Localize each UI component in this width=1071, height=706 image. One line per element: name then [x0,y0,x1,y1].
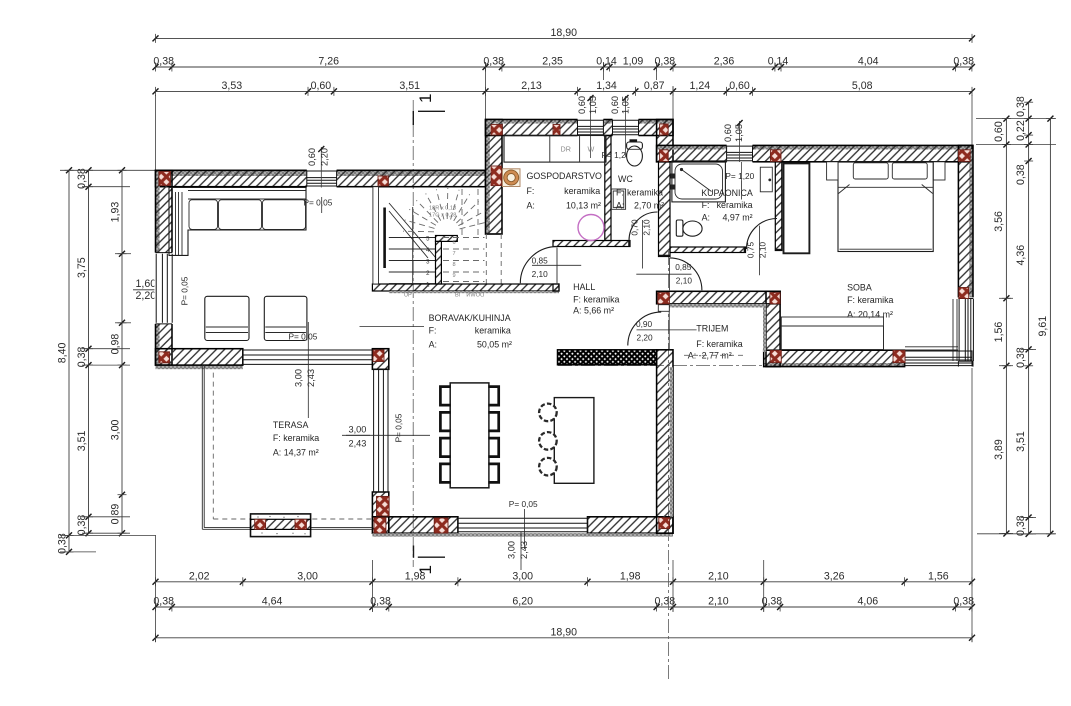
svg-text:3,56: 3,56 [993,211,1005,232]
svg-text:5,08: 5,08 [852,80,873,92]
svg-text:0,38: 0,38 [1015,347,1027,368]
svg-text:2,10: 2,10 [676,276,693,286]
svg-text:0,90: 0,90 [636,319,653,329]
svg-text:3,51: 3,51 [1015,431,1027,452]
svg-text:KUPAONICA: KUPAONICA [701,188,753,198]
svg-text:2,10: 2,10 [642,219,652,236]
svg-text:Bl: Bl [455,293,460,299]
svg-text:DR: DR [561,145,571,154]
svg-text:TERASA: TERASA [273,420,309,430]
svg-text:WC: WC [618,174,633,184]
svg-text:0,38: 0,38 [153,596,174,608]
svg-text:UP: UP [404,293,412,299]
svg-text:1,98: 1,98 [620,570,641,582]
svg-text:2,20: 2,20 [637,333,654,343]
svg-text:3,89: 3,89 [993,439,1005,460]
svg-text:P= 0,05: P= 0,05 [304,198,333,208]
svg-text:0,38: 0,38 [57,533,69,554]
svg-text:2,43: 2,43 [349,438,367,448]
svg-text:F:: F: [429,326,437,336]
svg-text:50,05 m²: 50,05 m² [477,340,512,350]
svg-text:W: W [588,145,595,154]
svg-text:17G x 0,28: 17G x 0,28 [429,213,456,219]
svg-text:1: 1 [416,565,435,574]
svg-text:3,53: 3,53 [221,80,242,92]
svg-text:4,06: 4,06 [857,596,878,608]
svg-text:4,04: 4,04 [858,56,879,68]
svg-text:3,00: 3,00 [506,541,516,559]
svg-text:0,14: 0,14 [768,56,789,68]
svg-text:1,24: 1,24 [689,80,710,92]
svg-text:0,85: 0,85 [532,256,549,266]
svg-text:0,38: 0,38 [483,56,504,68]
svg-text:0,60: 0,60 [723,124,733,142]
svg-text:4,97 m²: 4,97 m² [723,213,753,223]
svg-text:F:: F: [616,188,624,198]
svg-text:F: keramika: F: keramika [847,295,893,305]
svg-text:0,38: 0,38 [153,56,174,68]
svg-text:2,10: 2,10 [708,596,729,608]
svg-text:1,09: 1,09 [623,56,644,68]
svg-text:2,20: 2,20 [320,148,330,166]
svg-text:2,43: 2,43 [306,369,316,387]
svg-text:10,13 m²: 10,13 m² [566,201,601,211]
svg-text:0,38: 0,38 [1015,515,1027,536]
svg-text:3,00: 3,00 [349,424,367,434]
svg-text:P= 0,05: P= 0,05 [180,276,190,305]
svg-text:3,00: 3,00 [110,419,122,440]
svg-text:0,14: 0,14 [596,56,617,68]
svg-text:9: 9 [453,273,456,279]
svg-text:2,10: 2,10 [532,269,549,279]
svg-text:2,10: 2,10 [708,570,729,582]
svg-text:18,90: 18,90 [551,27,578,39]
svg-text:F: keramika: F: keramika [696,339,742,349]
svg-text:9,61: 9,61 [1037,316,1049,337]
svg-text:2,20: 2,20 [136,290,157,302]
svg-text:0,38: 0,38 [1015,164,1027,185]
svg-text:0,75: 0,75 [746,242,756,259]
svg-text:1,60: 1,60 [136,278,157,290]
svg-text:0,38: 0,38 [654,56,675,68]
svg-text:keramika: keramika [475,326,511,336]
svg-text:P= 0,05: P= 0,05 [289,332,318,342]
svg-text:2,35: 2,35 [542,56,563,68]
svg-text:0,60: 0,60 [311,80,332,92]
svg-text:3,00: 3,00 [297,570,318,582]
svg-text:7: 7 [453,251,456,257]
svg-text:SOBA: SOBA [847,283,872,293]
svg-text:GOSPODARSTVO: GOSPODARSTVO [527,171,603,181]
svg-text:2,10: 2,10 [758,242,768,259]
svg-text:A:: A: [429,340,437,350]
svg-text:6: 6 [453,240,456,246]
svg-text:A: 5,66 m²: A: 5,66 m² [573,306,614,316]
svg-text:1,34: 1,34 [596,80,617,92]
svg-text:18R x 0,18: 18R x 0,18 [429,206,456,212]
svg-text:F: keramika: F: keramika [573,295,619,305]
svg-text:1: 1 [416,94,435,103]
svg-text:A:: A: [616,201,624,211]
svg-text:A: 20,14 m²: A: 20,14 m² [847,309,893,319]
svg-text:0,60: 0,60 [307,148,317,166]
svg-text:0,98: 0,98 [110,334,122,355]
svg-text:8: 8 [453,262,456,268]
svg-text:0,38: 0,38 [76,515,88,536]
svg-text:0,38: 0,38 [370,596,391,608]
svg-text:1,05: 1,05 [734,124,744,142]
svg-text:7,26: 7,26 [318,56,339,68]
svg-text:6,20: 6,20 [512,596,533,608]
svg-text:2,02: 2,02 [189,570,210,582]
svg-text:TRIJEM: TRIJEM [696,324,728,334]
svg-text:0,70: 0,70 [630,219,640,236]
svg-text:18,90: 18,90 [551,626,578,638]
svg-text:1,56: 1,56 [928,570,949,582]
svg-text:keramika: keramika [564,186,600,196]
svg-text:0,38: 0,38 [1015,96,1027,117]
svg-text:0,22: 0,22 [1015,120,1027,141]
svg-text:3,00: 3,00 [294,369,304,387]
svg-text:F:: F: [702,200,710,210]
svg-text:0,38: 0,38 [953,596,974,608]
svg-text:1,93: 1,93 [110,202,122,223]
svg-text:4,64: 4,64 [262,596,283,608]
svg-text:0,89: 0,89 [110,504,122,525]
svg-text:0,87: 0,87 [644,80,665,92]
svg-text:0,60: 0,60 [729,80,750,92]
svg-text:3,75: 3,75 [76,257,88,278]
svg-text:P= 0,05: P= 0,05 [394,413,404,442]
svg-text:DOWN: DOWN [466,293,484,299]
svg-text:F:: F: [527,186,535,196]
svg-text:2,13: 2,13 [521,80,542,92]
svg-text:1,56: 1,56 [993,322,1005,343]
svg-text:0,38: 0,38 [76,168,88,189]
svg-text:0,60: 0,60 [610,96,620,114]
svg-text:A:: A: [702,213,710,223]
svg-text:0,38: 0,38 [654,596,675,608]
svg-text:A:: A: [527,201,535,211]
svg-text:3,51: 3,51 [399,80,420,92]
svg-text:0,85: 0,85 [675,262,692,272]
svg-text:0,38: 0,38 [953,56,974,68]
svg-text:keramika: keramika [717,200,753,210]
svg-text:BORAVAK/KUHINJA: BORAVAK/KUHINJA [429,313,511,323]
svg-text:A: 14,37 m²: A: 14,37 m² [273,448,319,458]
svg-text:P= 0,05: P= 0,05 [509,499,538,509]
svg-text:0,60: 0,60 [993,121,1005,142]
svg-text:0,38: 0,38 [762,596,783,608]
svg-text:P= 1,20: P= 1,20 [725,171,754,181]
svg-text:2,70 m²: 2,70 m² [634,201,664,211]
svg-text:3,26: 3,26 [824,570,845,582]
svg-text:HALL: HALL [573,282,595,292]
svg-text:0,60: 0,60 [577,96,587,114]
svg-text:3,51: 3,51 [76,430,88,451]
svg-text:3,00: 3,00 [512,570,533,582]
svg-text:keramika: keramika [627,188,663,198]
svg-text:F: keramika: F: keramika [273,433,319,443]
svg-text:1,05: 1,05 [621,96,631,114]
svg-text:2,36: 2,36 [714,56,735,68]
svg-text:8,40: 8,40 [57,342,69,363]
svg-text:2,43: 2,43 [519,541,529,559]
svg-text:1,05: 1,05 [588,96,598,114]
svg-text:4,36: 4,36 [1015,245,1027,266]
svg-text:0,38: 0,38 [76,346,88,367]
